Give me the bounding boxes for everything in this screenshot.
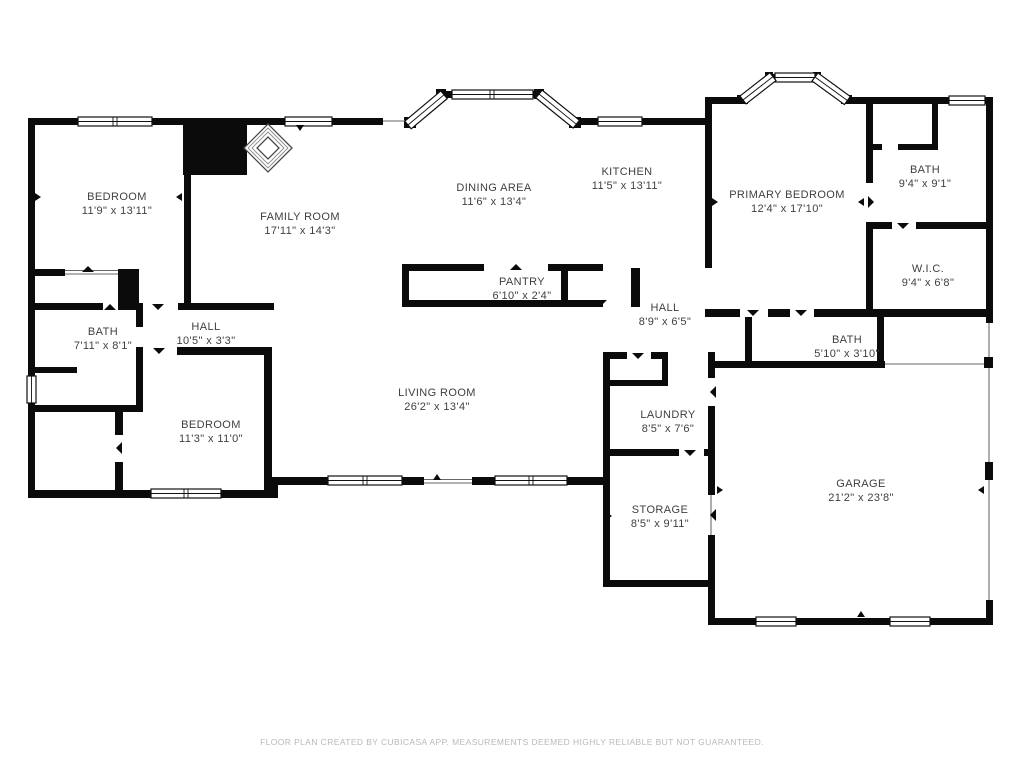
floor-plan: BEDROOM 11'9" x 13'11" FAMILY ROOM 17'11… <box>0 0 1024 768</box>
room-label-family-room: FAMILY ROOM 17'11" x 14'3" <box>260 210 340 238</box>
room-label-kitchen: KITCHEN 11'5" x 13'11" <box>592 165 662 193</box>
room-name: BATH <box>899 163 952 177</box>
room-name: PRIMARY BEDROOM <box>729 188 845 202</box>
patio-slider-icon <box>424 480 472 484</box>
room-name: STORAGE <box>631 503 689 517</box>
bay-window-icon <box>812 73 850 105</box>
room-dimensions: 10'5" x 3'3" <box>176 334 235 348</box>
room-label-primary-bedroom: PRIMARY BEDROOM 12'4" x 17'10" <box>729 188 845 216</box>
room-dimensions: 11'6" x 13'4" <box>456 195 531 209</box>
room-dimensions: 8'5" x 7'6" <box>640 422 695 436</box>
room-label-bath-top-right: BATH 9'4" x 9'1" <box>899 163 952 191</box>
room-dimensions: 8'9" x 6'5" <box>639 315 692 329</box>
window-icon <box>598 117 642 126</box>
room-name: BEDROOM <box>82 190 152 204</box>
room-name: LIVING ROOM <box>398 386 476 400</box>
window-icon <box>890 617 930 626</box>
room-name: BATH <box>814 333 880 347</box>
room-name: HALL <box>639 301 692 315</box>
floor-plan-drawing <box>0 0 1024 768</box>
room-dimensions: 17'11" x 14'3" <box>260 224 340 238</box>
window-icon <box>949 96 985 105</box>
room-dimensions: 12'4" x 17'10" <box>729 202 845 216</box>
room-name: HALL <box>176 320 235 334</box>
room-dimensions: 5'10" x 3'10" <box>814 347 880 361</box>
room-name: BEDROOM <box>179 418 243 432</box>
window-icon <box>328 476 402 485</box>
room-dimensions: 6'10" x 2'4" <box>492 289 551 303</box>
room-dimensions: 9'4" x 9'1" <box>899 177 952 191</box>
window-icon <box>27 376 36 403</box>
room-label-pantry: PANTRY 6'10" x 2'4" <box>492 275 551 303</box>
bay-window-icon <box>536 90 580 128</box>
room-name: DINING AREA <box>456 181 531 195</box>
room-label-hall-right: HALL 8'9" x 6'5" <box>639 301 692 329</box>
room-dimensions: 8'5" x 9'11" <box>631 517 689 531</box>
footer-disclaimer: FLOOR PLAN CREATED BY CUBICASA APP. MEAS… <box>0 737 1024 747</box>
room-label-bath-middle: BATH 5'10" x 3'10" <box>814 333 880 361</box>
room-name: W.I.C. <box>902 262 955 276</box>
window-icon <box>285 117 332 126</box>
room-name: LAUNDRY <box>640 408 695 422</box>
room-name: GARAGE <box>828 477 894 491</box>
room-dimensions: 11'3" x 11'0" <box>179 432 243 446</box>
room-dimensions: 21'2" x 23'8" <box>828 491 894 505</box>
room-label-living-room: LIVING ROOM 26'2" x 13'4" <box>398 386 476 414</box>
room-label-laundry: LAUNDRY 8'5" x 7'6" <box>640 408 695 436</box>
bay-window-icon <box>740 73 776 104</box>
room-label-bedroom-2: BEDROOM 11'3" x 11'0" <box>179 418 243 446</box>
room-name: PANTRY <box>492 275 551 289</box>
room-dimensions: 9'4" x 6'8" <box>902 276 955 290</box>
room-dimensions: 11'5" x 13'11" <box>592 179 662 193</box>
room-dimensions: 26'2" x 13'4" <box>398 400 476 414</box>
room-name: KITCHEN <box>592 165 662 179</box>
room-label-bath-left: BATH 7'11" x 8'1" <box>74 325 132 353</box>
door-markers <box>82 196 909 521</box>
room-label-bedroom-1: BEDROOM 11'9" x 13'11" <box>82 190 152 218</box>
room-name: BATH <box>74 325 132 339</box>
window-icon <box>452 90 533 99</box>
window-icon <box>495 476 567 485</box>
bay-window-icon <box>405 91 447 129</box>
window-icon <box>775 73 815 82</box>
room-name: FAMILY ROOM <box>260 210 340 224</box>
room-dimensions: 7'11" x 8'1" <box>74 339 132 353</box>
room-label-storage: STORAGE 8'5" x 9'11" <box>631 503 689 531</box>
window-icon <box>151 489 221 498</box>
window-icon <box>78 117 152 126</box>
room-label-garage: GARAGE 21'2" x 23'8" <box>828 477 894 505</box>
room-label-wic: W.I.C. 9'4" x 6'8" <box>902 262 955 290</box>
room-label-hall-left: HALL 10'5" x 3'3" <box>176 320 235 348</box>
fireplace-icon <box>244 124 292 172</box>
room-label-dining-area: DINING AREA 11'6" x 13'4" <box>456 181 531 209</box>
window-icon <box>756 617 796 626</box>
room-dimensions: 11'9" x 13'11" <box>82 204 152 218</box>
